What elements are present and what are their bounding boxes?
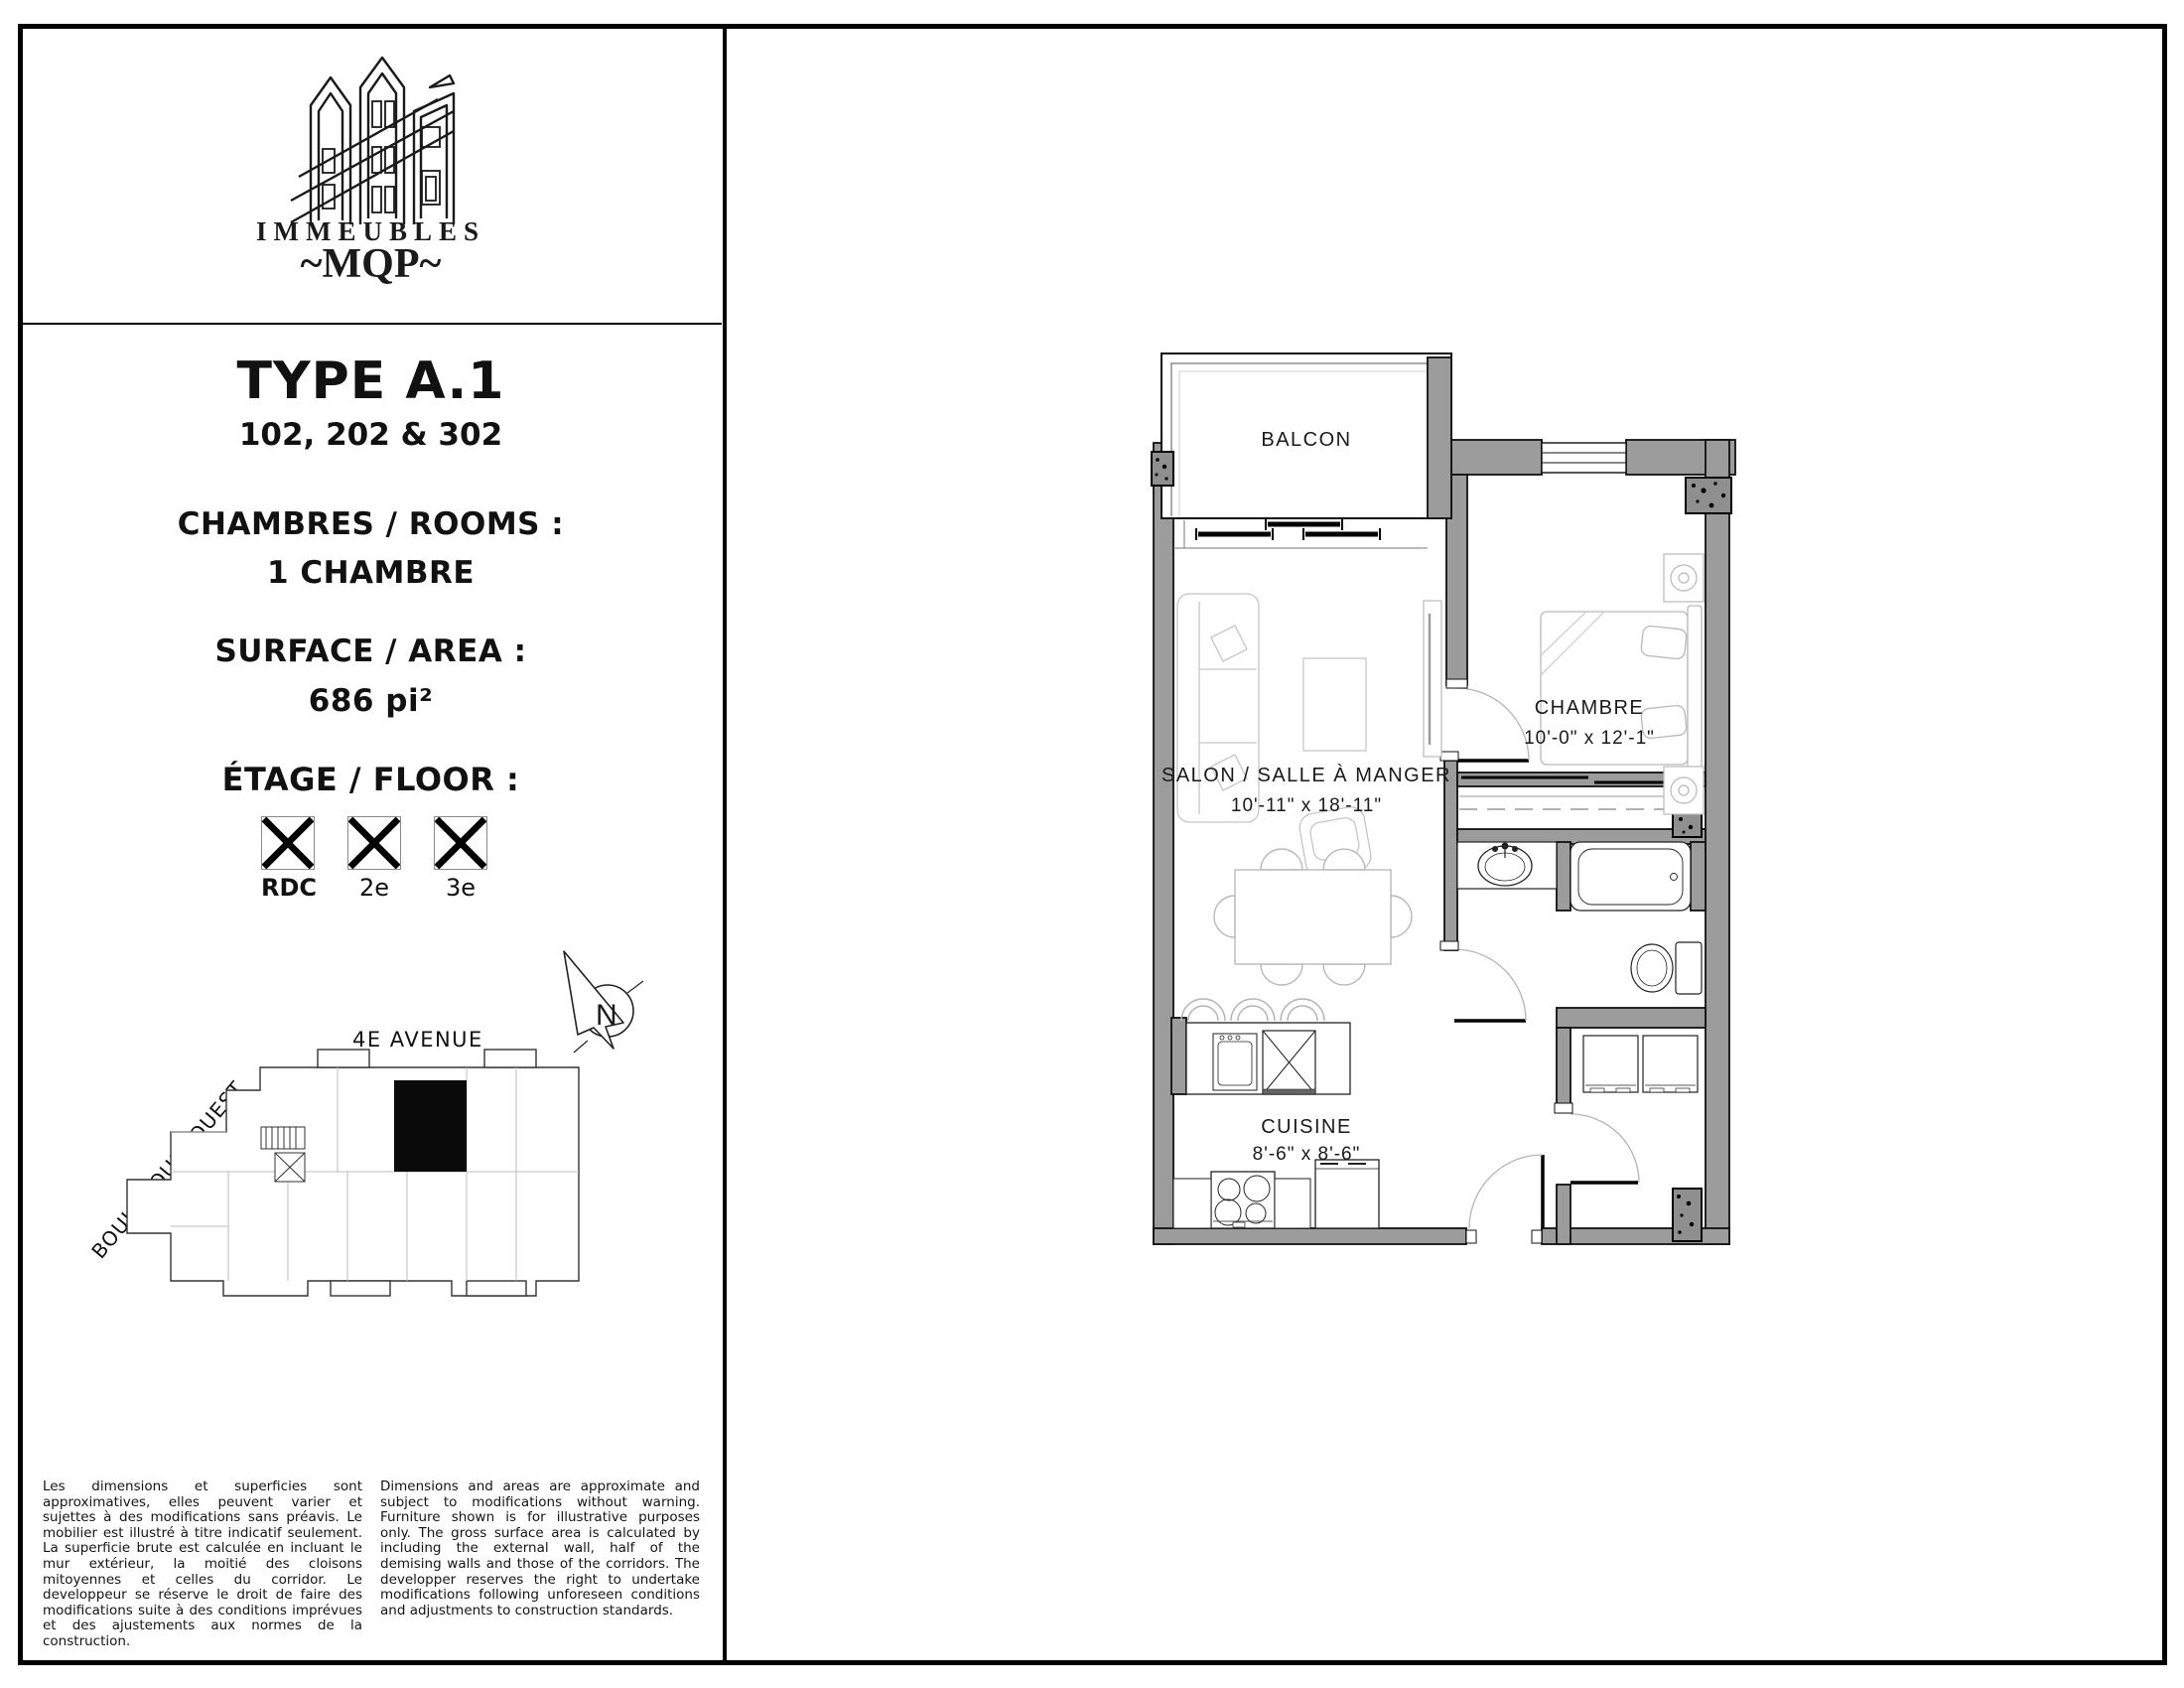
room-label-chambre: CHAMBRE: [1535, 697, 1645, 719]
balcony-structure: [1161, 353, 1451, 548]
floor-checkbox-rdc: [261, 816, 315, 870]
bedroom-window: [1542, 443, 1626, 473]
room-dims-cuisine: 8'-6" x 8'-6": [1253, 1144, 1361, 1165]
bathroom-vanity: [1457, 842, 1557, 889]
unit-numbers: 102, 202 & 302: [18, 417, 724, 453]
svg-text:N: N: [596, 999, 617, 1032]
company-monogram: ~MQP~: [18, 240, 724, 288]
dining-set: [1214, 849, 1412, 985]
stove: [1211, 1172, 1275, 1228]
disclaimer-french: Les dimensions et superficies sont appro…: [43, 1479, 362, 1650]
room-label-balcon: BALCON: [1261, 429, 1351, 451]
unit-floor-plan: BALCON CHAMBRE 10'-0" x 12'-1" SALON / S…: [1092, 328, 1787, 1311]
section-divider: [20, 323, 722, 325]
washer-dryer: [1583, 1036, 1698, 1092]
floorplan-sheet: IMMEUBLES ~MQP~ TYPE A.1 102, 202 & 302 …: [0, 0, 2184, 1688]
room-label-salon: SALON / SALLE À MANGER: [1161, 764, 1451, 786]
room-label-cuisine: CUISINE: [1261, 1116, 1352, 1138]
kitchen-counter-left: [1173, 1179, 1211, 1228]
room-dims-chambre: 10'-0" x 12'-1": [1524, 728, 1655, 749]
bathtub: [1570, 842, 1691, 911]
bar-stools: [1181, 999, 1324, 1021]
sofa: [1177, 594, 1259, 822]
site-key-plan: N: [40, 943, 695, 1350]
area-label: SURFACE / AREA :: [18, 633, 724, 669]
floor-checkbox-2e: [347, 816, 401, 870]
floor-label-2e: 2e: [347, 874, 401, 902]
area-value: 686 pi²: [18, 683, 724, 719]
company-logo-icon: [289, 54, 456, 228]
floor-label-rdc: RDC: [261, 874, 315, 902]
rooms-value: 1 CHAMBRE: [18, 555, 724, 591]
highlighted-unit: [394, 1080, 467, 1172]
rooms-label: CHAMBRES / ROOMS :: [18, 506, 724, 542]
kitchen-island: [1186, 1023, 1350, 1094]
unit-type-title: TYPE A.1: [18, 352, 724, 411]
info-panel: IMMEUBLES ~MQP~ TYPE A.1 102, 202 & 302 …: [18, 24, 724, 1665]
north-compass-icon: N: [564, 951, 643, 1053]
floor-label: ÉTAGE / FLOOR :: [18, 761, 724, 798]
room-dims-salon: 10'-11" x 18'-11": [1231, 795, 1382, 816]
floor-checkbox-3e: [434, 816, 487, 870]
floor-label-3e: 3e: [434, 874, 487, 902]
kitchen-counter-right: [1275, 1179, 1310, 1228]
tv-console: [1424, 601, 1441, 757]
toilet: [1631, 942, 1702, 994]
coffee-table: [1303, 658, 1366, 751]
disclaimer-english: Dimensions and areas are approximate and…: [380, 1479, 700, 1618]
fridge: [1315, 1160, 1379, 1228]
